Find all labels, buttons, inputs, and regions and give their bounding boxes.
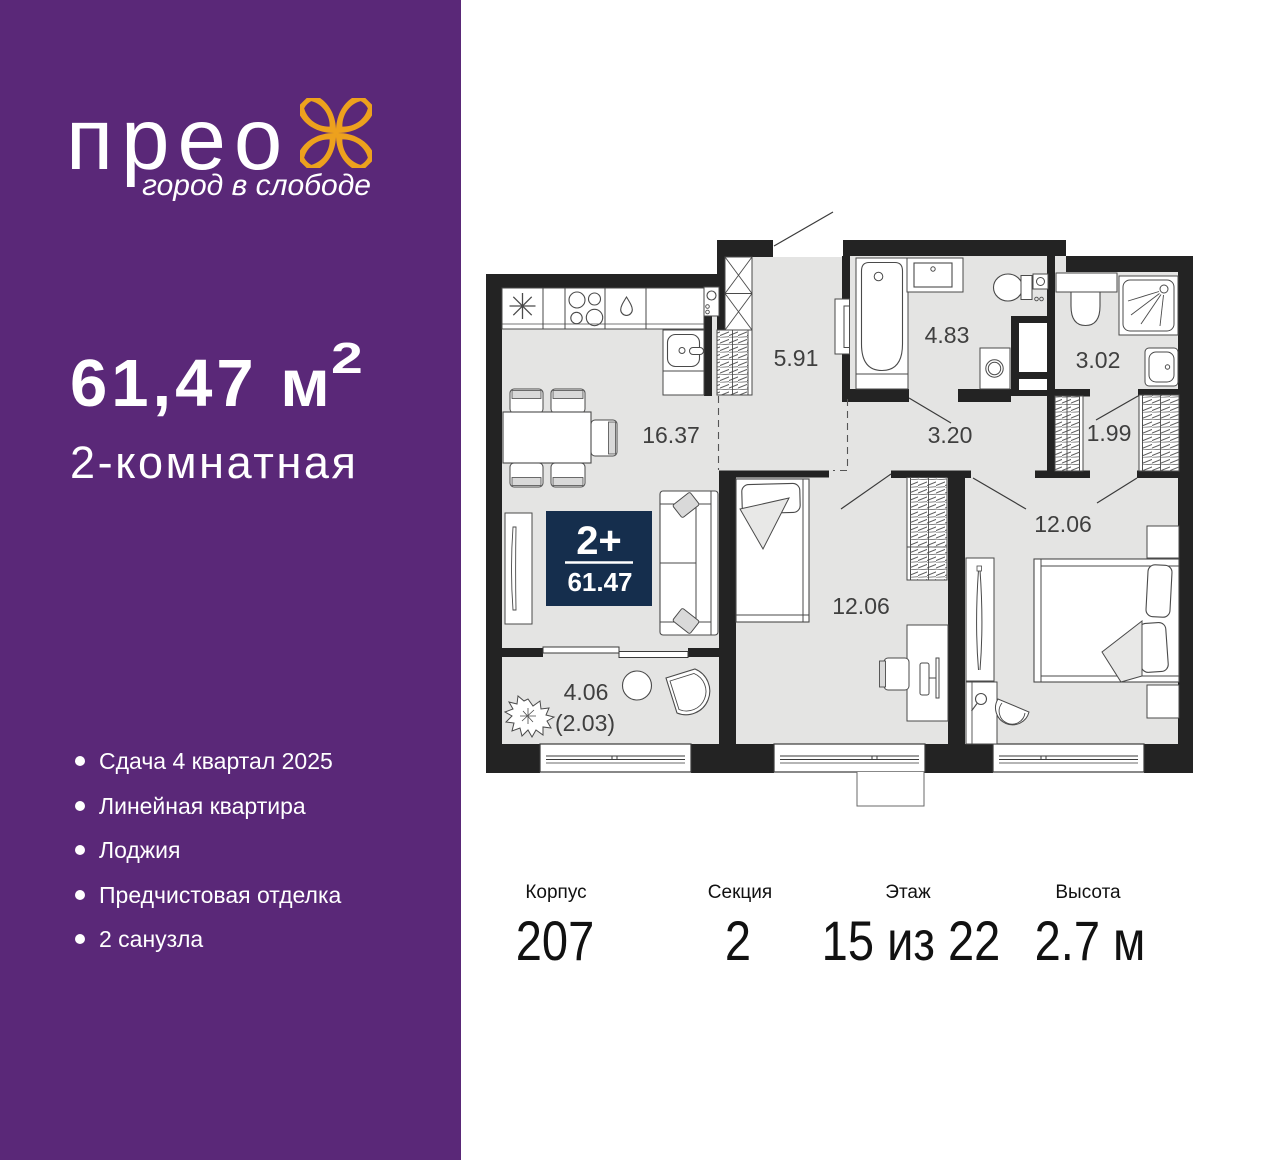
svg-text:4.83: 4.83 <box>925 322 970 348</box>
svg-text:12.06: 12.06 <box>1034 511 1092 537</box>
svg-text:2+: 2+ <box>576 519 622 563</box>
svg-text:1.99: 1.99 <box>1087 420 1132 446</box>
svg-text:12.06: 12.06 <box>832 593 890 619</box>
svg-text:61.47: 61.47 <box>567 567 632 597</box>
svg-text:4.06: 4.06 <box>564 679 609 705</box>
svg-text:3.20: 3.20 <box>928 422 973 448</box>
svg-text:16.37: 16.37 <box>642 422 700 448</box>
svg-text:(2.03): (2.03) <box>555 710 615 736</box>
svg-text:5.91: 5.91 <box>774 345 819 371</box>
svg-text:3.02: 3.02 <box>1076 347 1121 373</box>
